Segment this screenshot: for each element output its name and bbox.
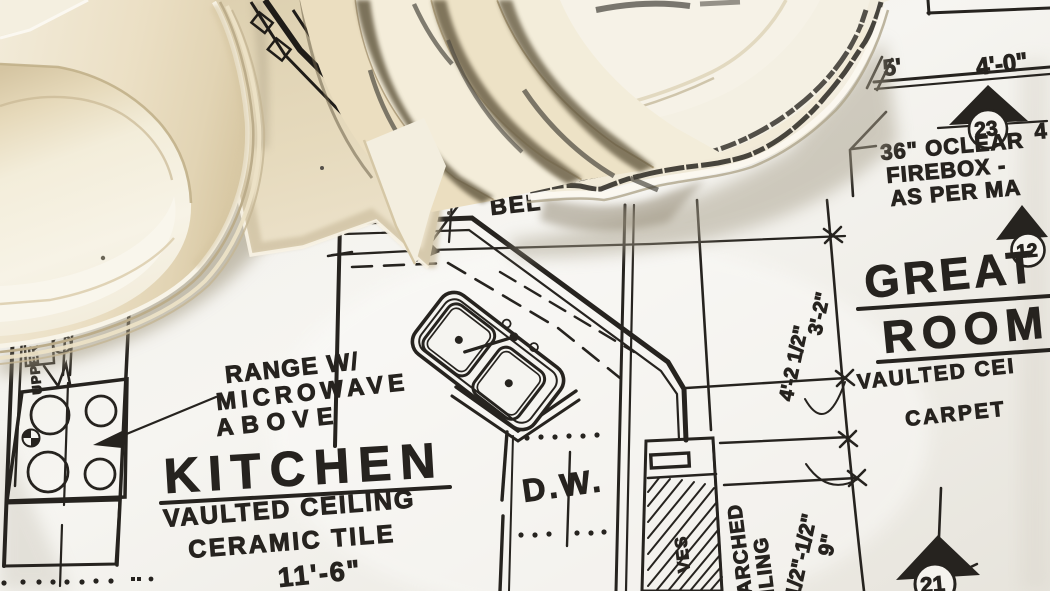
svg-text:VES: VES — [671, 535, 694, 574]
svg-text:21: 21 — [919, 571, 946, 591]
